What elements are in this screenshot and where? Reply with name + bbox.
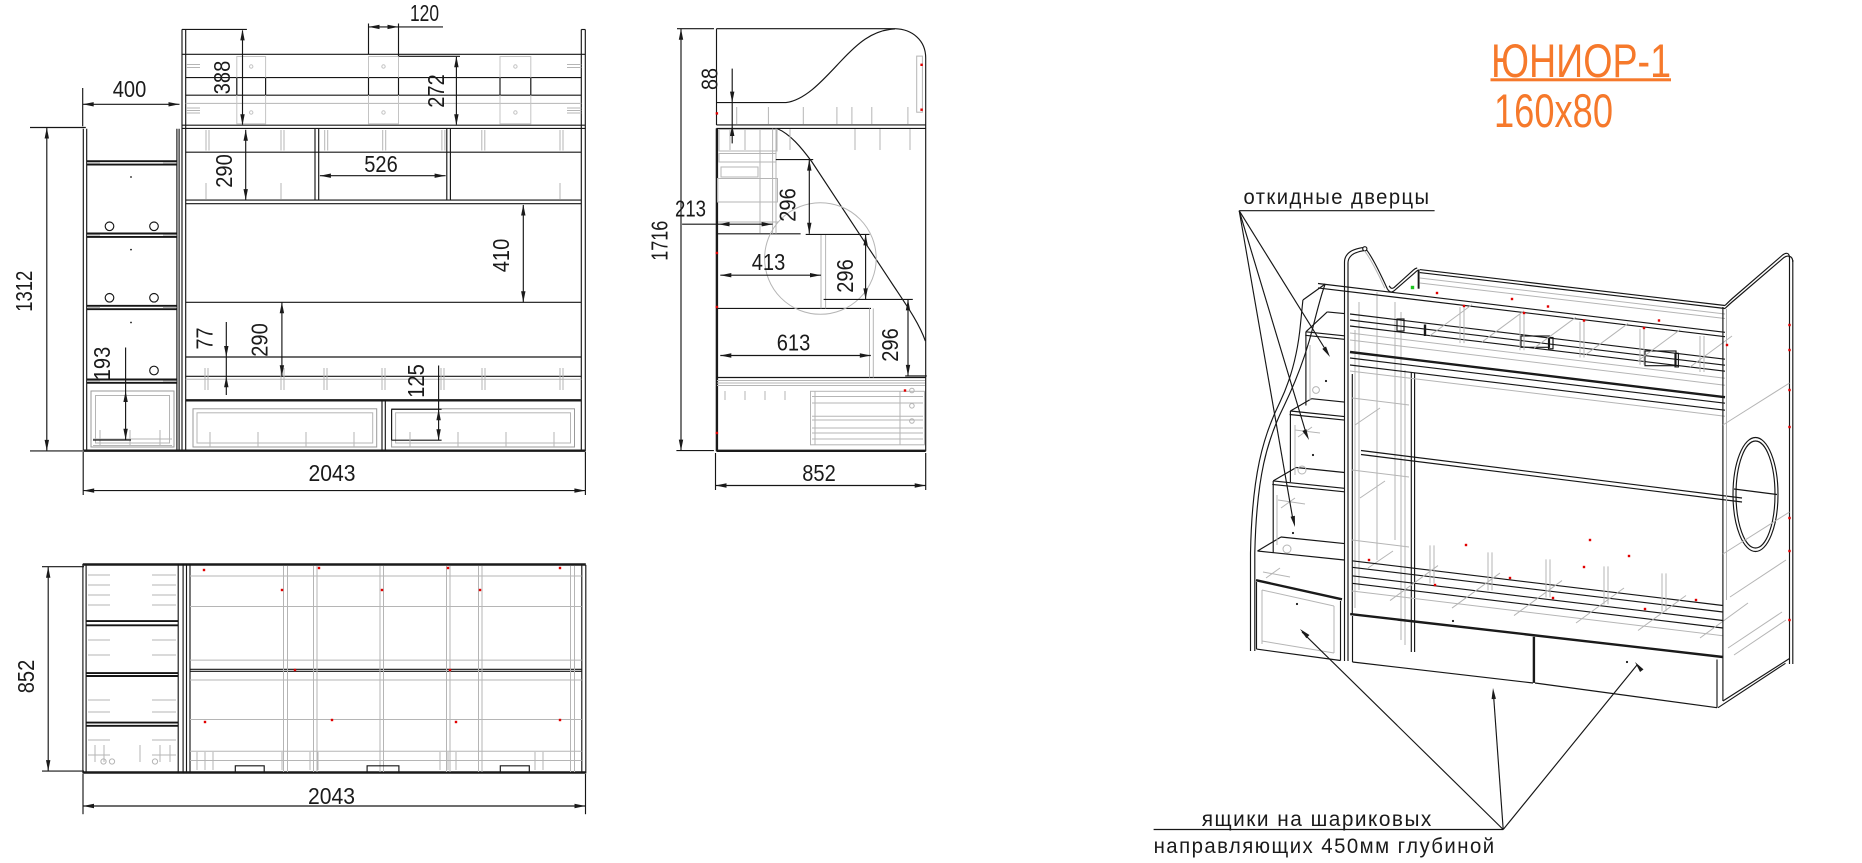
svg-text:526: 526 (364, 151, 398, 177)
svg-text:852: 852 (802, 460, 836, 486)
svg-text:290: 290 (247, 323, 273, 357)
svg-text:290: 290 (211, 154, 237, 188)
svg-text:1312: 1312 (11, 271, 37, 312)
svg-text:77: 77 (192, 328, 218, 350)
svg-text:296: 296 (832, 259, 858, 293)
svg-text:1716: 1716 (647, 221, 673, 261)
svg-text:направляющих 450мм глубиной: направляющих 450мм глубиной (1154, 835, 1496, 858)
svg-text:88: 88 (697, 68, 723, 90)
svg-text:852: 852 (13, 660, 39, 694)
svg-text:160x80: 160x80 (1494, 84, 1613, 137)
svg-text:388: 388 (209, 61, 235, 95)
svg-text:120: 120 (410, 0, 439, 26)
svg-text:272: 272 (423, 74, 449, 108)
svg-text:ящики на шариковых: ящики на шариковых (1202, 808, 1433, 831)
svg-text:296: 296 (775, 188, 801, 222)
svg-text:400: 400 (113, 76, 147, 102)
svg-text:213: 213 (675, 196, 706, 222)
svg-text:410: 410 (488, 239, 514, 273)
svg-text:193: 193 (89, 347, 115, 381)
svg-text:413: 413 (752, 249, 786, 275)
svg-text:125: 125 (403, 364, 429, 398)
svg-text:2043: 2043 (309, 460, 356, 486)
svg-text:296: 296 (877, 328, 903, 362)
svg-text:откидные дверцы: откидные дверцы (1244, 186, 1431, 209)
svg-text:2043: 2043 (308, 783, 355, 809)
svg-text:613: 613 (777, 329, 811, 355)
